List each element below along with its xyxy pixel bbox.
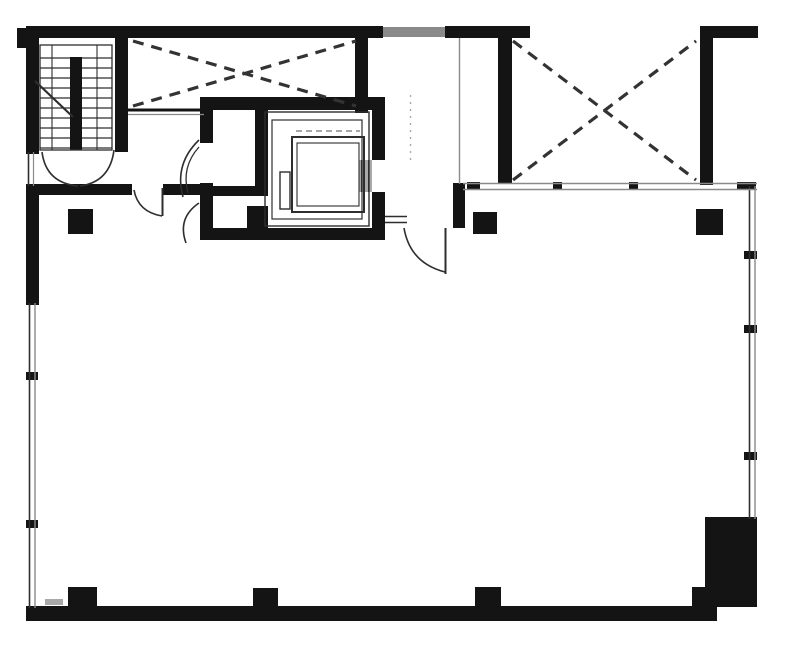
column-bottom-center-left	[253, 588, 278, 613]
floor-plan-svg	[0, 0, 787, 649]
top-left-corner-nub	[17, 28, 27, 48]
stair-left-wall	[26, 26, 39, 154]
column-top-left	[68, 209, 93, 234]
stair-right-wall	[115, 26, 128, 152]
corner-sill-dash	[45, 599, 63, 605]
column-bottom-left	[68, 587, 97, 612]
core-bottom-wall	[200, 228, 385, 240]
core-room-wall	[200, 186, 268, 196]
column-top-center	[473, 212, 497, 234]
left-window-mullion-2	[26, 520, 38, 528]
core-divider-wall	[255, 110, 268, 195]
under-stair-wall	[26, 184, 132, 195]
top-right-side-wall	[700, 26, 713, 185]
left-window-mullion-1	[26, 372, 38, 380]
core-left-wall-upper	[200, 97, 213, 143]
core-top-wall	[200, 97, 385, 110]
right-shaft-left-wall	[498, 26, 512, 184]
column-bottom-center-right	[475, 587, 501, 612]
top-wall-right	[445, 26, 530, 38]
bottom-wall	[26, 606, 717, 621]
column-top-right	[696, 209, 723, 235]
top-wall-hatched-segment	[383, 27, 445, 37]
corner-pier-step	[692, 587, 708, 620]
corner-pier	[705, 517, 757, 607]
floor-plan-page	[0, 0, 787, 649]
core-right-wall-upper	[372, 97, 385, 160]
left-wall-mid	[26, 184, 39, 305]
elevator-door-panel	[359, 160, 372, 192]
top-wall-left	[26, 26, 383, 38]
stair-divider-wall	[70, 57, 82, 150]
